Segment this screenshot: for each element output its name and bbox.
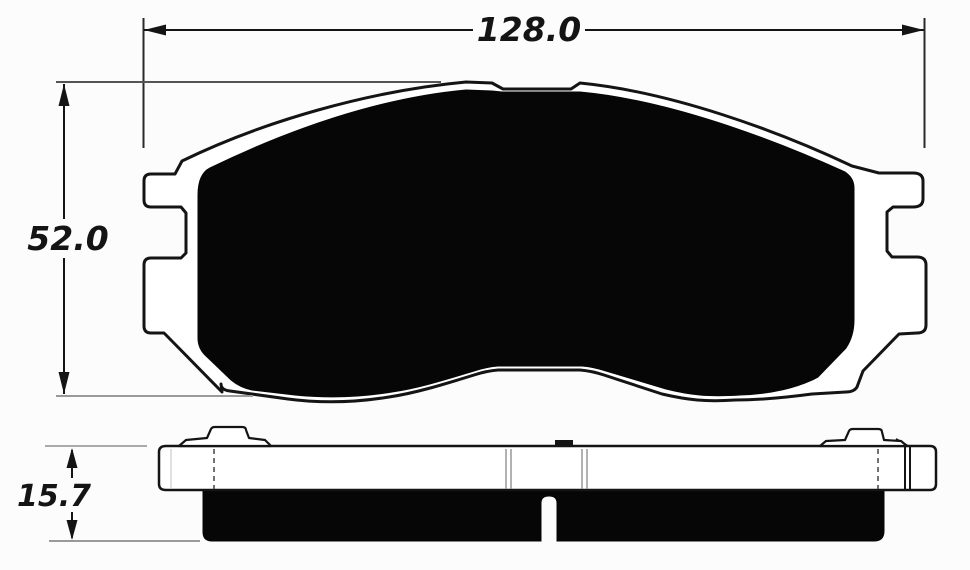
brake-pad-dimensional-drawing: 128.0 52.0 15.7 xyxy=(0,0,970,570)
height-arrow-down-icon xyxy=(59,372,70,394)
technical-drawing-svg: 128.0 52.0 15.7 xyxy=(0,0,970,570)
thickness-arrow-up-icon xyxy=(67,448,78,468)
side-view xyxy=(159,427,936,541)
thickness-dimension-label: 15.7 xyxy=(17,479,91,514)
height-arrow-up-icon xyxy=(59,84,70,106)
width-arrow-left-icon xyxy=(144,25,166,36)
front-view xyxy=(144,82,926,402)
right-clip xyxy=(820,429,907,446)
width-dimension-label: 128.0 xyxy=(477,10,581,49)
left-clip xyxy=(179,427,271,446)
thickness-arrow-down-icon xyxy=(67,520,78,540)
side-friction-material xyxy=(203,490,884,541)
plate-top-tab xyxy=(555,440,573,447)
side-backplate xyxy=(159,446,936,490)
pad-friction-material xyxy=(198,90,854,397)
height-dimension-label: 52.0 xyxy=(27,219,108,258)
width-arrow-right-icon xyxy=(902,25,924,36)
